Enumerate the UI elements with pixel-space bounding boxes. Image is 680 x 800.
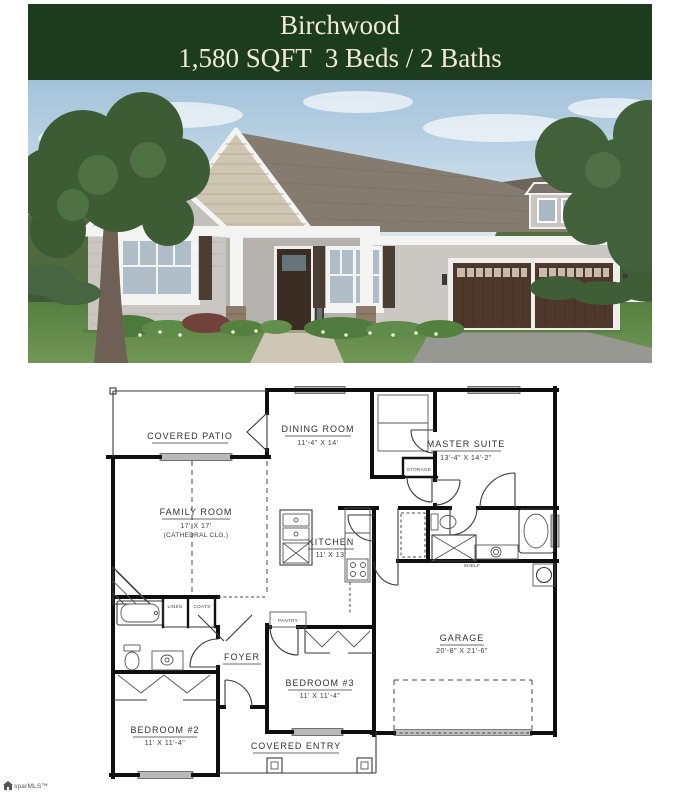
mls-house-icon	[3, 781, 13, 791]
toilet-tank	[431, 514, 438, 530]
sink	[161, 655, 173, 665]
room-label: GARAGE	[440, 633, 485, 643]
room-dims: 13'-4" X 14'-2"	[440, 455, 492, 462]
porch-lamp	[442, 274, 447, 285]
room-label: BEDROOM #2	[130, 725, 199, 735]
plan-labels: COVERED PATIO DINING ROOM 11'-4" X 14' M…	[130, 424, 505, 753]
bath2-fixtures	[117, 601, 183, 670]
toilet	[125, 652, 139, 670]
front-door	[225, 680, 252, 707]
room-label: COVERED PATIO	[147, 431, 233, 441]
storage-door	[407, 477, 432, 502]
porch	[220, 226, 395, 330]
garage-entry-door	[374, 561, 398, 585]
window	[138, 772, 193, 779]
shutter	[313, 246, 325, 308]
room-dims: 11' X 13'	[316, 552, 347, 559]
room-note: (CATHEDRAL CLG.)	[164, 532, 229, 539]
closet-label: SHELF	[464, 563, 480, 568]
room-label: FOYER	[224, 652, 260, 662]
mls-watermark: sparMLS™	[3, 781, 48, 791]
header-banner: Birchwood 1,580 SQFT 3 Beds / 2 Baths	[28, 4, 652, 80]
closet-label: STORAGE	[407, 467, 431, 472]
porch-fascia	[220, 226, 380, 237]
plan-title: Birchwood	[280, 9, 400, 41]
window-sill	[116, 300, 200, 305]
room-dims: 17' X 17'	[180, 523, 211, 530]
bath2-double-doors	[198, 615, 252, 641]
garage-parking-outline	[394, 680, 532, 729]
master-hall-door	[480, 473, 515, 508]
window	[160, 454, 232, 461]
entry-outline	[218, 732, 376, 773]
shutter	[383, 246, 395, 308]
hall-bath-door	[190, 639, 218, 667]
toilet-tank	[124, 645, 140, 651]
plan-subtitle: 1,580 SQFT 3 Beds / 2 Baths	[178, 41, 502, 75]
closet-label: PANTRY	[278, 618, 298, 623]
room-label: DINING ROOM	[282, 424, 355, 434]
room-label: BEDROOM #3	[285, 678, 354, 688]
master-bath-door	[450, 508, 477, 535]
window	[292, 729, 343, 736]
vanity	[152, 651, 183, 670]
house-photo	[28, 80, 652, 363]
toilet	[440, 516, 456, 529]
sink	[491, 547, 501, 557]
closet-label: LINEN	[167, 604, 182, 609]
room-dims: 20'-8" X 21'-6"	[436, 648, 488, 655]
shutter	[199, 236, 212, 300]
entry-columns	[267, 758, 372, 773]
room-label: MASTER SUITE	[427, 439, 506, 449]
bathtub	[117, 601, 163, 625]
bedroom3-door	[270, 627, 298, 655]
room-dims: 11' X 11'-4"	[300, 693, 340, 700]
mls-watermark-text: sparMLS™	[14, 783, 48, 790]
room-label: FAMILY ROOM	[160, 507, 233, 517]
master-closet-shelves	[401, 513, 425, 557]
closet-label: COATS	[194, 604, 211, 609]
room-label: KITCHEN	[308, 537, 355, 547]
range	[347, 559, 368, 580]
flyer-page: { "header": { "title": "Birchwood", "sub…	[0, 0, 680, 800]
room-dims: 11'-4" X 14'	[298, 440, 339, 447]
room-dims: 11' X 11'-4"	[145, 740, 185, 747]
water-heater	[537, 568, 552, 583]
room-label: COVERED ENTRY	[251, 741, 341, 751]
patio-door	[247, 413, 267, 451]
floor-plan: COVERED PATIO DINING ROOM 11'-4" X 14' M…	[0, 375, 680, 800]
master-door	[435, 480, 460, 505]
